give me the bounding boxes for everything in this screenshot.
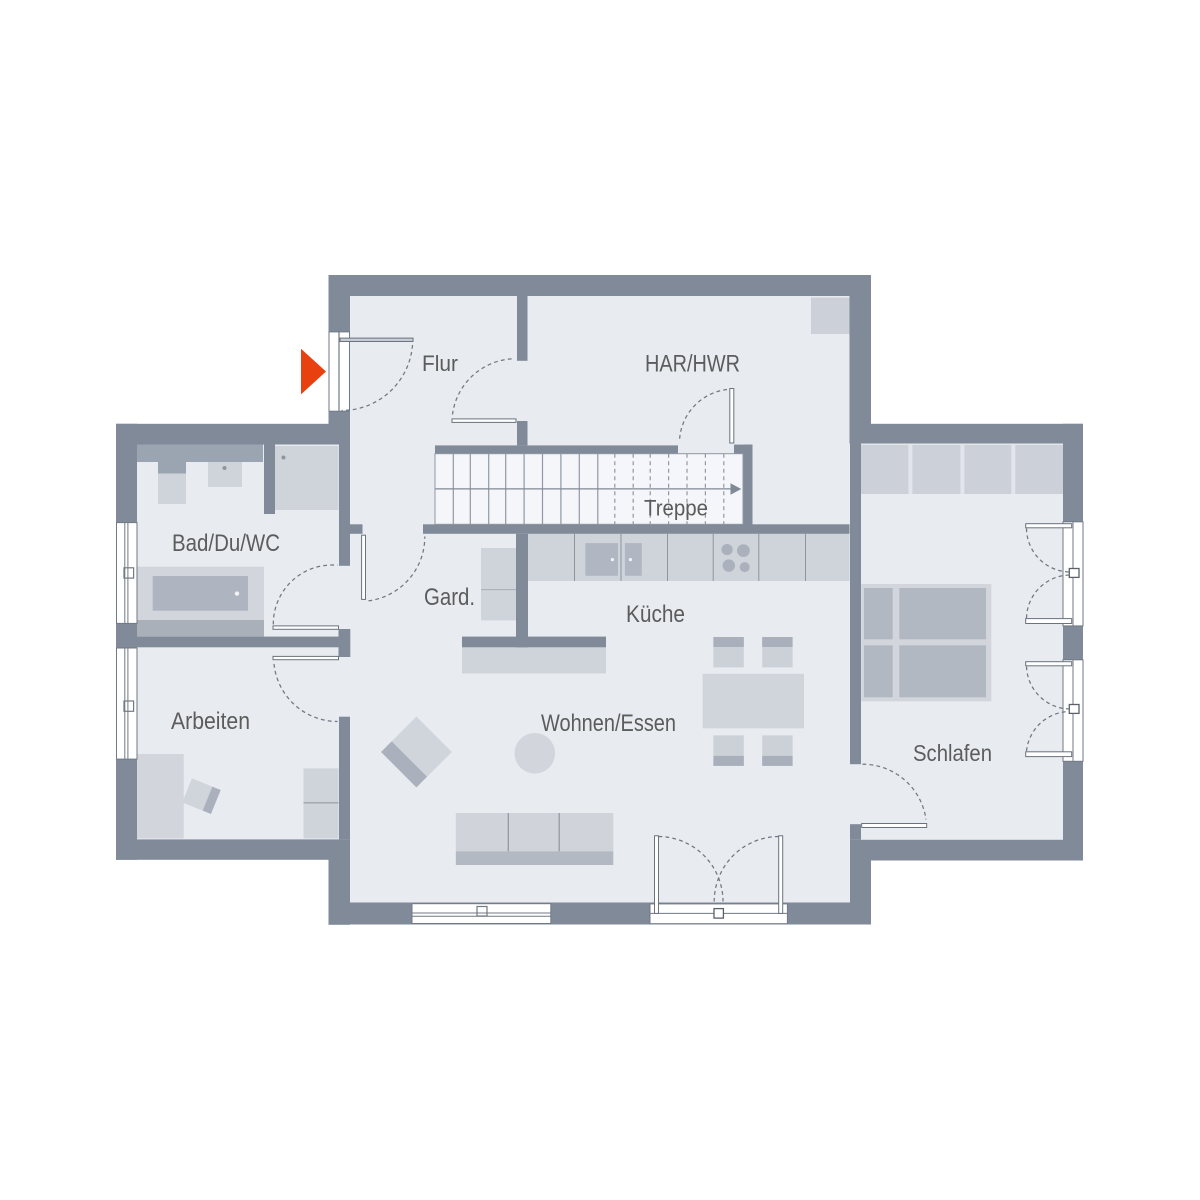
svg-text:HAR/HWR: HAR/HWR bbox=[645, 351, 740, 378]
svg-text:Wohnen/Essen: Wohnen/Essen bbox=[541, 710, 676, 737]
svg-text:Bad/Du/WC: Bad/Du/WC bbox=[172, 530, 280, 557]
svg-text:Treppe: Treppe bbox=[644, 496, 708, 521]
svg-text:Schlafen: Schlafen bbox=[913, 740, 992, 766]
svg-text:Küche: Küche bbox=[626, 601, 685, 628]
svg-text:Flur: Flur bbox=[422, 351, 458, 376]
svg-text:Gard.: Gard. bbox=[424, 584, 475, 611]
svg-text:Arbeiten: Arbeiten bbox=[171, 708, 250, 735]
